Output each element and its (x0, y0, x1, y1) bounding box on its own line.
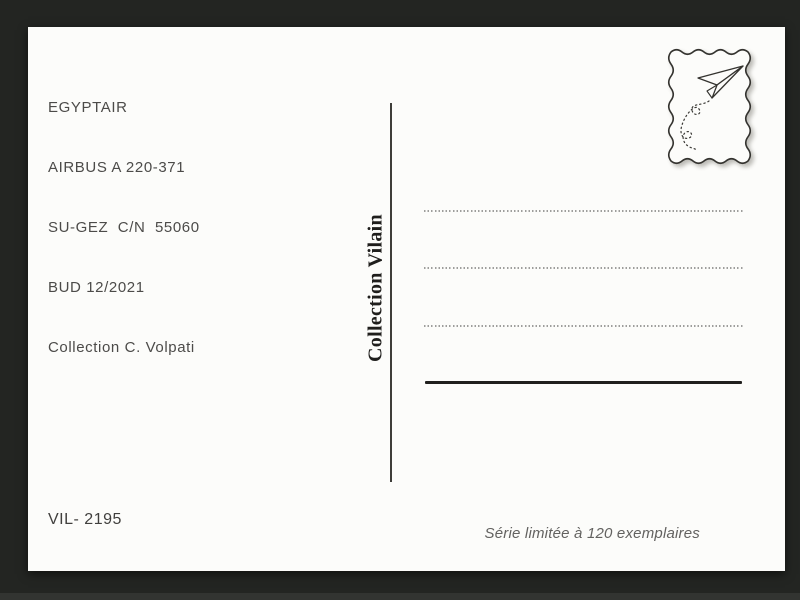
address-line-1 (424, 210, 744, 212)
caption-line-airline: EGYPTAIR (48, 98, 200, 118)
edition-note: Série limitée à 120 exemplaires (485, 525, 700, 542)
caption-line-photographer: Collection C. Volpati (48, 338, 200, 358)
address-line-3 (424, 325, 744, 327)
scan-background: EGYPTAIR AIRBUS A 220-371 SU-GEZ C/N 550… (0, 0, 800, 600)
paper-plane-icon (663, 43, 756, 170)
vertical-divider (390, 103, 392, 482)
caption-line-registration: SU-GEZ C/N 55060 (48, 218, 200, 238)
catalog-number: VIL- 2195 (48, 511, 122, 529)
caption-line-aircraft: AIRBUS A 220-371 (48, 158, 200, 178)
publisher-vertical-title: Collection Vilain (365, 214, 388, 362)
solid-rule (425, 381, 742, 384)
stamp-box (663, 43, 756, 170)
postcard-back: EGYPTAIR AIRBUS A 220-371 SU-GEZ C/N 550… (28, 27, 785, 571)
caption-block: EGYPTAIR AIRBUS A 220-371 SU-GEZ C/N 550… (48, 58, 200, 398)
caption-line-location-date: BUD 12/2021 (48, 278, 200, 298)
address-line-2 (424, 267, 744, 269)
